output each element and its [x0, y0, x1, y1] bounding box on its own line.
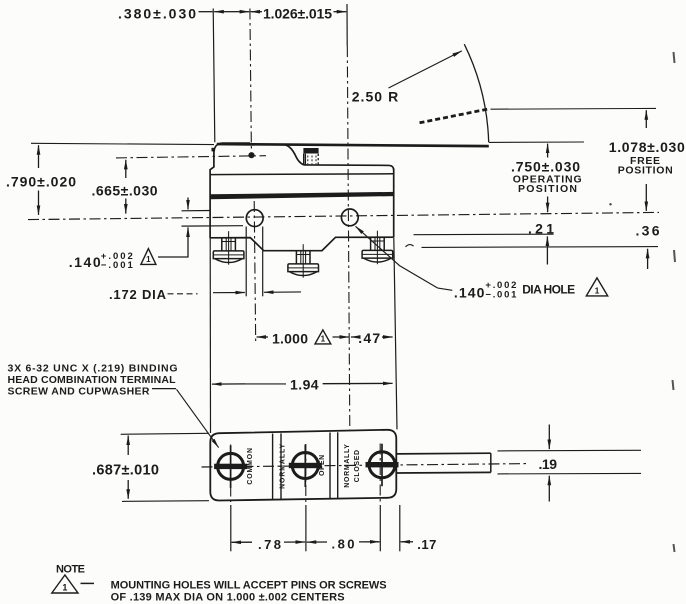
svg-text:.19: .19 — [539, 456, 558, 472]
svg-text:POSITION: POSITION — [518, 183, 577, 195]
svg-text:HEAD COMBINATION TERMINAL: HEAD COMBINATION TERMINAL — [8, 374, 177, 386]
svg-text:1: 1 — [595, 285, 600, 295]
svg-text:1.026±.015: 1.026±.015 — [263, 6, 332, 22]
svg-text:.17: .17 — [417, 537, 436, 552]
svg-text:.172 DIA: .172 DIA — [109, 287, 167, 302]
svg-text:−.001: −.001 — [101, 260, 134, 271]
svg-text:POSITION: POSITION — [618, 164, 673, 176]
svg-text:3X 6-32 UNC X (.219) BINDING: 3X 6-32 UNC X (.219) BINDING — [8, 363, 178, 375]
svg-text:NORMALLY: NORMALLY — [344, 444, 351, 488]
svg-text:NOTE: NOTE — [56, 564, 85, 576]
svg-text:.47: .47 — [358, 330, 380, 346]
svg-text:.750±.030: .750±.030 — [511, 158, 580, 174]
svg-text:OPEN: OPEN — [319, 455, 326, 476]
svg-text:−.001: −.001 — [485, 290, 517, 301]
svg-text:NORMALLY: NORMALLY — [280, 444, 287, 489]
svg-text:1: 1 — [321, 335, 326, 344]
svg-text:1.94: 1.94 — [290, 377, 319, 393]
svg-text:COMMON: COMMON — [247, 448, 254, 485]
svg-text:.36: .36 — [636, 222, 660, 238]
svg-text:MOUNTING HOLES WILL ACCEPT PIN: MOUNTING HOLES WILL ACCEPT PINS OR SCREW… — [111, 579, 387, 591]
svg-text:1.078±.030: 1.078±.030 — [609, 139, 685, 155]
svg-text:.140: .140 — [454, 284, 485, 300]
svg-text:.687±.010: .687±.010 — [92, 462, 159, 478]
svg-text:.665±.030: .665±.030 — [92, 183, 158, 199]
svg-text:2.50 R: 2.50 R — [352, 89, 399, 105]
svg-text:.380±.030: .380±.030 — [118, 6, 196, 22]
svg-text:1.000: 1.000 — [272, 330, 308, 346]
svg-text:.790±.020: .790±.020 — [6, 173, 76, 189]
svg-text:1: 1 — [146, 255, 151, 264]
svg-text:.80: .80 — [332, 537, 355, 552]
svg-text:CLOSED: CLOSED — [354, 450, 361, 482]
svg-text:1: 1 — [62, 583, 67, 593]
svg-text:.140: .140 — [69, 254, 101, 270]
svg-text:.78: .78 — [258, 537, 281, 552]
svg-text:DIA HOLE: DIA HOLE — [522, 283, 575, 297]
svg-text:SCREW AND CUPWASHER: SCREW AND CUPWASHER — [8, 386, 150, 398]
svg-text:OF .139 MAX DIA ON 1.000 ±.002: OF .139 MAX DIA ON 1.000 ±.002 CENTERS — [111, 592, 345, 604]
